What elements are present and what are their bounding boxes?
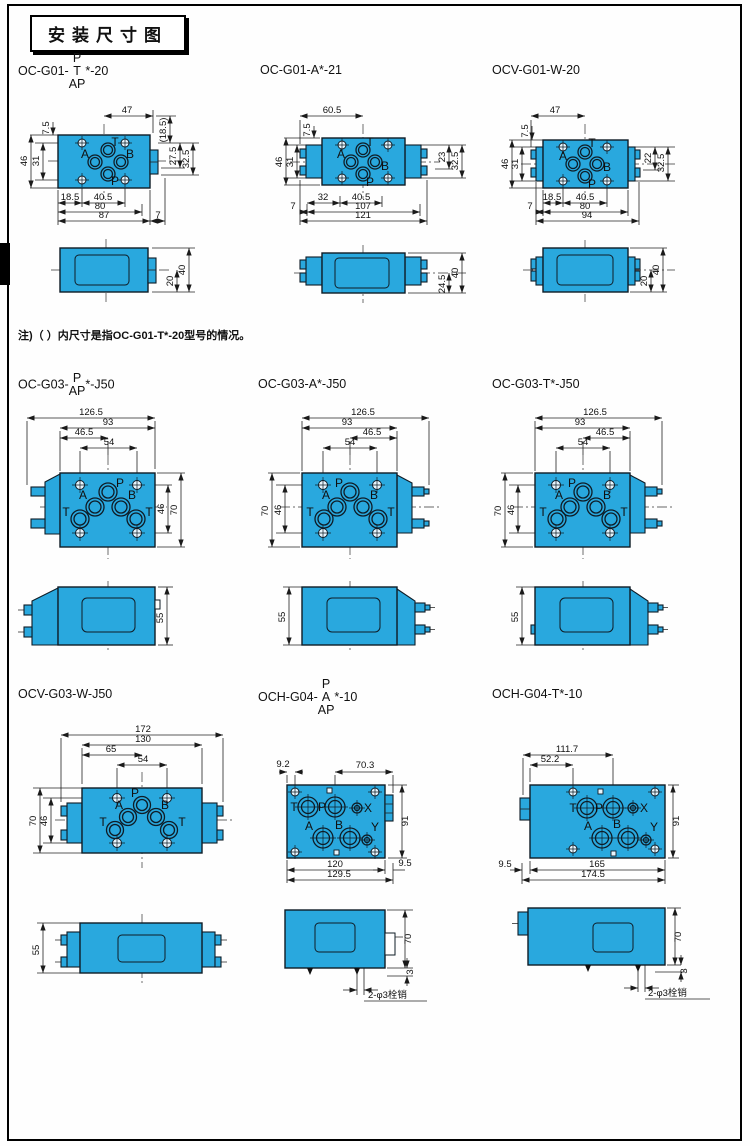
port-label: P — [366, 175, 374, 189]
port-label: P — [595, 801, 603, 815]
dim-label: 40 — [651, 265, 662, 276]
dim-label: 126.5 — [79, 407, 103, 418]
dim-label: 87 — [99, 210, 110, 221]
dim-label: 7.5 — [41, 121, 52, 134]
dim-label: 7 — [290, 201, 295, 212]
valve-body-side-view — [302, 587, 430, 645]
dim-label: 31 — [31, 156, 42, 167]
drawing-och-g04-t-10: T P X A B Y 111.7 52.2 91 165 174.5 9.5 … — [485, 700, 740, 1030]
dim-label: 174.5 — [581, 869, 605, 880]
dim-label: 7.5 — [520, 124, 531, 137]
dim-label: 40 — [177, 265, 188, 276]
dim-label: 121 — [355, 210, 371, 221]
port-label: T — [539, 505, 547, 519]
dim-label: 55 — [31, 945, 42, 956]
dim-label: 70 — [403, 934, 414, 945]
port-label: P — [318, 800, 326, 814]
port-label: A — [559, 149, 567, 163]
drawing-oc-g01-a-21: T A B P 60.5 7.5 46 31 23 32.5 32 40.5 7… — [250, 100, 485, 315]
port-label: T — [62, 505, 70, 519]
dim-label: 20 — [639, 276, 650, 287]
dim-label: 18.5 — [61, 192, 80, 203]
dim-label: 46 — [273, 505, 284, 516]
drawing-ocv-g01-w-20: T A B P 47 7.5 46 31 22 32.5 18.5 40.5 7… — [485, 100, 735, 315]
port-label: A — [322, 488, 330, 502]
port-label: B — [603, 488, 611, 502]
port-label: A — [79, 488, 87, 502]
model-label-d6: OC-G03-T*-J50 — [492, 378, 580, 392]
port-label: T — [145, 505, 153, 519]
port-label: T — [569, 801, 577, 815]
page-title: 安装尺寸图 — [30, 15, 186, 52]
dim-label: 7 — [155, 210, 160, 221]
dim-label: 54 — [578, 437, 589, 448]
dim-label: 54 — [104, 437, 115, 448]
dim-label: 3 — [679, 968, 690, 973]
dim-label: 20 — [165, 276, 176, 287]
dim-label: 129.5 — [327, 869, 351, 880]
dim-label: 46.5 — [596, 427, 615, 438]
valve-body-side-view — [531, 248, 640, 292]
dim-label: 52.2 — [541, 754, 560, 765]
port-label: A — [115, 798, 123, 812]
dim-label: 7 — [527, 201, 532, 212]
dim-label: 47 — [122, 105, 133, 116]
port-label: X — [364, 801, 372, 815]
dim-label: 9.5 — [498, 859, 511, 870]
dim-label: 70 — [673, 932, 684, 943]
port-label: T — [387, 505, 395, 519]
drawing-oc-g03-p-j50: P A B T T 126.5 93 46.5 54 46 70 55 — [15, 395, 255, 665]
port-label: B — [335, 818, 343, 832]
dim-label: 3 — [405, 969, 416, 974]
port-label: B — [161, 798, 169, 812]
dim-label: 46 — [274, 157, 285, 168]
note-text: 注)（ ）内尺寸是指OC-G01-T*-20型号的情况。 — [18, 327, 250, 343]
dim-label: 46 — [506, 505, 517, 516]
dim-label: 23 — [437, 152, 448, 163]
dim-label: 70 — [260, 506, 271, 517]
port-label: T — [99, 815, 107, 829]
dim-label: 46.5 — [363, 427, 382, 438]
port-label: T — [366, 135, 374, 149]
dim-label: 46 — [19, 156, 30, 167]
dim-label: 46 — [39, 816, 50, 827]
port-label: T — [306, 505, 314, 519]
port-label: P — [335, 476, 343, 490]
valve-body-side-view — [61, 923, 221, 973]
port-label: P — [111, 174, 119, 188]
dim-label: 91 — [671, 816, 682, 827]
pin-note: 2-φ3栓销 — [648, 987, 687, 999]
port-label: Y — [371, 820, 379, 834]
dim-label: 91 — [400, 816, 411, 827]
model-label-d5: OC-G03-A*-J50 — [258, 378, 346, 392]
dim-label: 27.5 — [168, 147, 179, 166]
dim-label: 55 — [277, 612, 288, 623]
model-label-d2: OC-G01-A*-21 — [260, 64, 342, 78]
dim-label: 40 — [450, 268, 461, 279]
dim-label: 70 — [28, 816, 39, 827]
dim-label: 65 — [106, 744, 117, 755]
port-label: A — [305, 819, 313, 833]
port-label: B — [126, 147, 134, 161]
dim-label: 54 — [138, 754, 149, 765]
dim-label: 31 — [510, 159, 521, 170]
port-label: B — [370, 488, 378, 502]
dim-label: 126.5 — [583, 407, 607, 418]
port-label: A — [555, 488, 563, 502]
dim-label: 9.5 — [398, 858, 411, 869]
dim-label: 18.5 — [543, 192, 562, 203]
dim-label: 70 — [493, 506, 504, 517]
port-label: A — [337, 147, 345, 161]
dowel-pin — [334, 850, 339, 855]
valve-body-top-view — [61, 788, 223, 853]
port-label: B — [128, 488, 136, 502]
page-edge-tab — [0, 243, 10, 285]
dim-label: 130 — [135, 734, 151, 745]
valve-body-side-view — [300, 253, 427, 293]
drawing-oc-g03-a-j50: P A B T T 126.5 93 46.5 54 70 46 55 — [255, 395, 485, 665]
dim-label: 70 — [169, 505, 180, 516]
port-label: A — [81, 147, 89, 161]
port-label: T — [111, 135, 119, 149]
port-label: A — [584, 819, 592, 833]
dim-label: 31 — [285, 157, 296, 168]
port-label: Y — [650, 820, 658, 834]
port-label: T — [588, 136, 596, 150]
dim-label: 93 — [342, 417, 353, 428]
dim-label: 126.5 — [351, 407, 375, 418]
dim-label: 54 — [345, 437, 356, 448]
dim-label: 60.5 — [323, 105, 342, 116]
dowel-pin — [327, 788, 332, 793]
catalog-page: 安装尺寸图 注)（ ）内尺寸是指OC-G01-T*-20型号的情况。 OC-G0… — [0, 0, 750, 1146]
valve-body-side-view — [24, 587, 160, 645]
dim-label: 24.5 — [437, 275, 448, 294]
port-label: P — [116, 476, 124, 490]
port-label: T — [620, 505, 628, 519]
dim-label: 22 — [643, 153, 654, 164]
valve-body-side-view — [518, 908, 665, 972]
port-label: X — [640, 801, 648, 815]
dim-label: 46.5 — [75, 427, 94, 438]
valve-body-side-view — [285, 910, 395, 975]
drawing-oc-g01-t-20: T A B P 47 (18.5) 7.5 46 31 27.5 32.5 18… — [15, 100, 245, 315]
port-label: B — [603, 160, 611, 174]
drawing-ocv-g03-w-j50: P A B T T 172 130 65 54 70 46 55 — [15, 700, 255, 1020]
port-label: P — [131, 786, 139, 800]
dim-label: 9.2 — [276, 759, 289, 770]
dim-label: 55 — [510, 612, 521, 623]
model-label-d1: OC-G01-PTAP*-20 — [18, 52, 108, 91]
dim-label: 94 — [582, 210, 593, 221]
dim-label: 32.5 — [656, 154, 667, 173]
valve-body-side-view — [531, 587, 663, 645]
dim-label: 46 — [156, 504, 167, 515]
dim-label: 32.5 — [450, 152, 461, 171]
dim-label: 32.5 — [181, 150, 192, 169]
dim-label: 55 — [155, 613, 166, 624]
port-label: T — [178, 815, 186, 829]
dim-label: 93 — [575, 417, 586, 428]
port-label: T — [290, 800, 298, 814]
port-label: B — [381, 159, 389, 173]
pin-note: 2-φ3栓销 — [368, 989, 407, 1001]
dim-label: (18.5) — [158, 118, 169, 143]
valve-body-top-view — [520, 785, 665, 858]
dim-label: 93 — [103, 417, 114, 428]
model-label-d3: OCV-G01-W-20 — [492, 64, 580, 78]
dim-label: 70.3 — [356, 760, 375, 771]
dowel-pin — [598, 789, 603, 794]
valve-body-side-view — [60, 248, 156, 292]
port-label: B — [613, 817, 621, 831]
dim-label: 7.5 — [302, 123, 313, 136]
port-label: P — [568, 476, 576, 490]
dim-label: 32 — [318, 192, 329, 203]
port-label: P — [588, 177, 596, 191]
dim-label: 47 — [550, 105, 561, 116]
drawing-oc-g03-t-j50: P A B T T 126.5 93 46.5 54 70 46 55 — [485, 395, 735, 665]
drawing-och-g04-a-10: T P X A B Y 9.2 70.3 91 120 129.5 9.5 70… — [255, 700, 485, 1030]
dowel-pin — [611, 851, 616, 856]
